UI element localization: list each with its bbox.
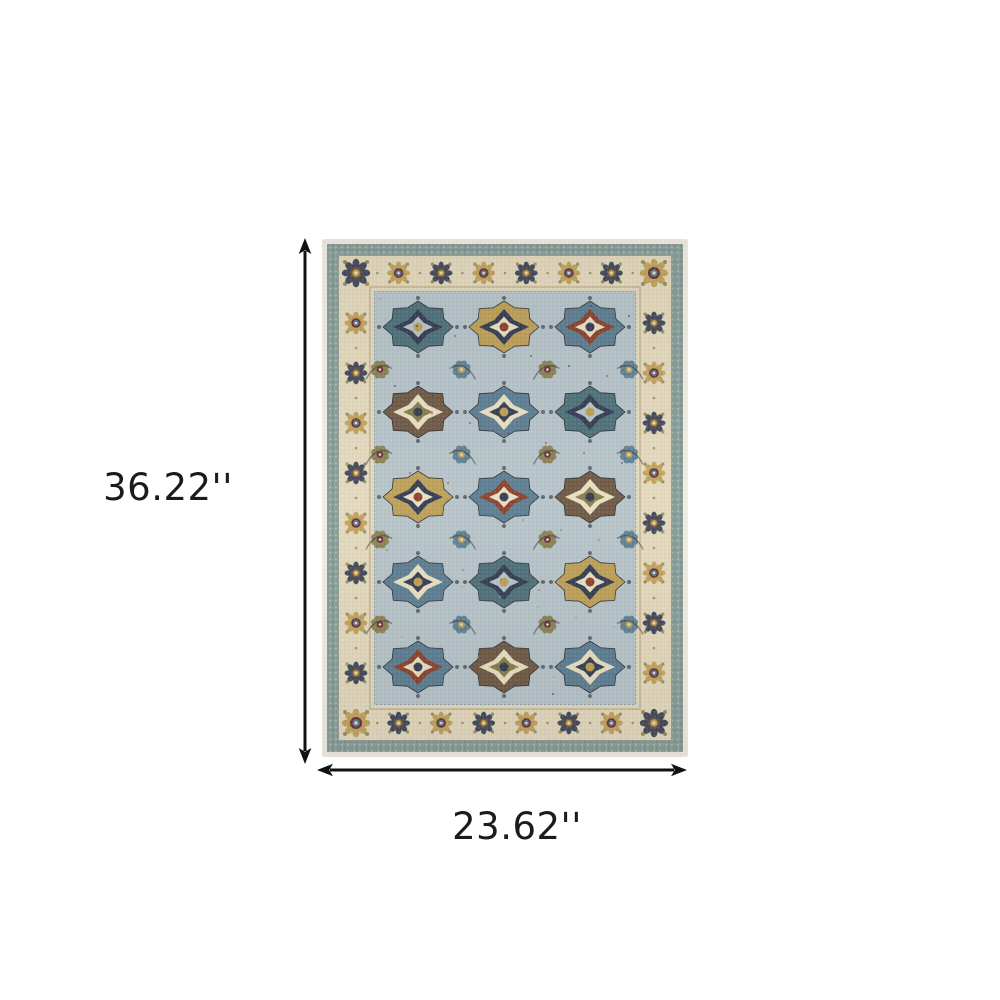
height-dimension-label: 36.22'' [48,465,288,511]
width-dimension-arrow [314,758,690,782]
product-dimension-image: 36.22'' 23.62'' [0,0,1000,1000]
width-dimension-label: 23.62'' [397,804,637,850]
rug-graphic [322,239,688,757]
rug-image [322,239,688,757]
height-dimension-arrow [293,237,317,765]
